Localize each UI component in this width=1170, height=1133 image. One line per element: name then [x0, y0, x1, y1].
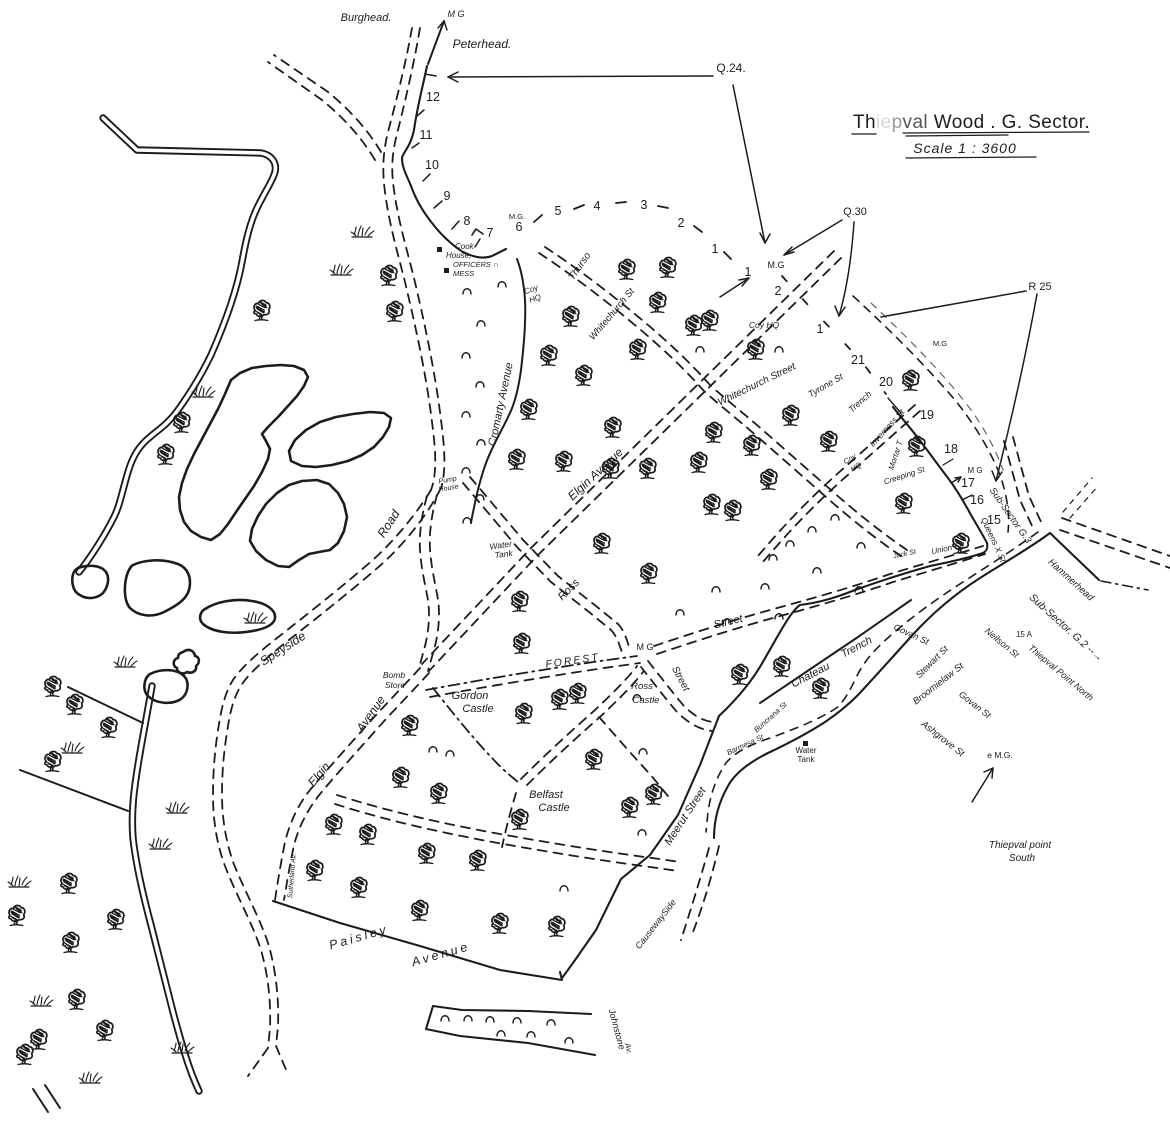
svg-text:Q.30: Q.30 [843, 206, 867, 218]
svg-text:Burghead.: Burghead. [341, 12, 392, 24]
svg-text:1: 1 [817, 322, 824, 336]
svg-text:South: South [1009, 853, 1036, 864]
svg-text:Cook: Cook [455, 242, 475, 251]
svg-text:Water: Water [795, 746, 816, 755]
svg-text:Thiepval point: Thiepval point [989, 840, 1052, 851]
svg-text:Belfast: Belfast [529, 789, 564, 801]
svg-text:1: 1 [712, 242, 719, 256]
svg-text:20: 20 [879, 375, 893, 389]
svg-text:5: 5 [555, 204, 562, 218]
svg-text:Store: Store [385, 680, 406, 690]
svg-text:11: 11 [420, 128, 433, 142]
svg-text:4: 4 [594, 199, 601, 213]
svg-text:2: 2 [775, 284, 782, 298]
svg-text:Coy HQ: Coy HQ [749, 320, 780, 330]
svg-text:21: 21 [851, 353, 865, 367]
svg-text:Scale 1 : 3600: Scale 1 : 3600 [913, 140, 1017, 156]
svg-text:15: 15 [987, 513, 1001, 527]
svg-text:Gordon: Gordon [452, 690, 489, 702]
svg-text:17: 17 [961, 476, 975, 490]
svg-text:MESS: MESS [453, 269, 474, 278]
svg-text:House,: House, [446, 251, 471, 260]
svg-text:9: 9 [444, 189, 451, 203]
svg-text:15 A: 15 A [1016, 630, 1033, 639]
svg-text:Q.24.: Q.24. [716, 61, 745, 75]
svg-text:8: 8 [464, 214, 471, 228]
svg-text:18: 18 [944, 442, 958, 456]
svg-text:12: 12 [426, 90, 440, 104]
svg-text:3: 3 [641, 198, 648, 212]
svg-text:e M.G.: e M.G. [987, 750, 1013, 760]
svg-text:OFFICERS ∩: OFFICERS ∩ [453, 260, 498, 269]
svg-text:M.G: M.G [768, 260, 785, 270]
svg-text:Peterhead.: Peterhead. [453, 37, 512, 51]
svg-text:Castle: Castle [462, 703, 493, 715]
svg-text:Castle: Castle [538, 802, 569, 814]
svg-text:6: 6 [516, 220, 523, 234]
svg-text:Ross: Ross [631, 681, 653, 692]
svg-text:M G: M G [448, 9, 465, 19]
svg-text:Thiepval Wood . G. Sector.: Thiepval Wood . G. Sector. [853, 112, 1090, 133]
svg-text:M G: M G [967, 466, 982, 475]
svg-text:M G: M G [637, 642, 654, 652]
svg-text:Bomb: Bomb [383, 670, 405, 680]
svg-text:R 25: R 25 [1028, 281, 1051, 293]
svg-text:1: 1 [745, 265, 752, 279]
svg-text:19: 19 [920, 408, 934, 422]
svg-text:Castle: Castle [633, 695, 660, 706]
svg-text:M.G: M.G [933, 339, 947, 348]
svg-text:10: 10 [425, 158, 439, 172]
svg-text:7: 7 [487, 226, 494, 240]
svg-text:16: 16 [970, 493, 984, 507]
svg-text:Tank: Tank [798, 755, 816, 764]
svg-text:2: 2 [678, 216, 685, 230]
